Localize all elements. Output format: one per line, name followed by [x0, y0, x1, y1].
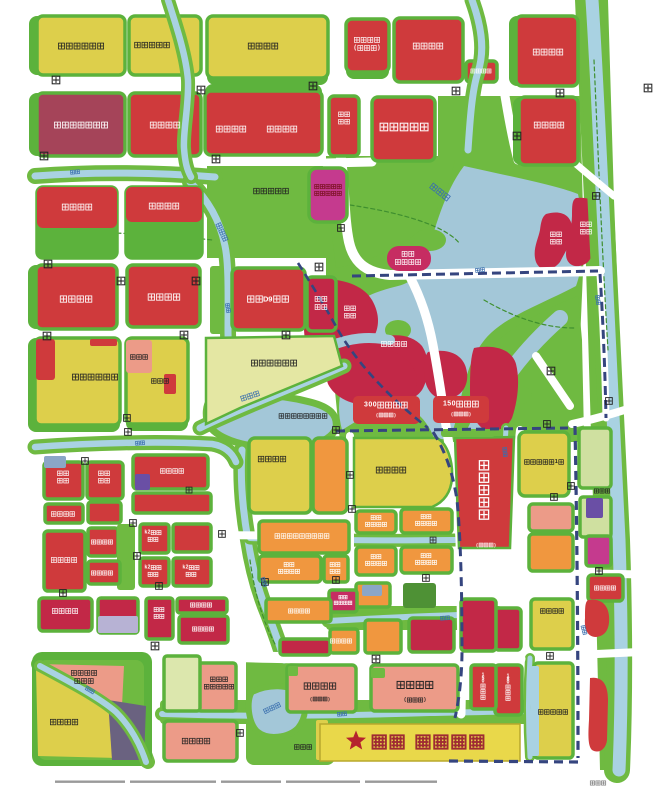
svg-text:0: 0 — [452, 401, 456, 408]
svg-text:(: ( — [354, 45, 356, 51]
svg-text:0: 0 — [373, 402, 377, 409]
svg-text:2: 2 — [148, 530, 151, 536]
svg-text:): ) — [378, 45, 380, 51]
svg-text:5: 5 — [447, 401, 451, 408]
svg-text:0: 0 — [368, 402, 372, 409]
svg-text:1: 1 — [555, 459, 558, 465]
svg-text:2: 2 — [148, 565, 151, 571]
svg-text:9: 9 — [268, 295, 272, 304]
svg-text:2: 2 — [186, 565, 189, 571]
